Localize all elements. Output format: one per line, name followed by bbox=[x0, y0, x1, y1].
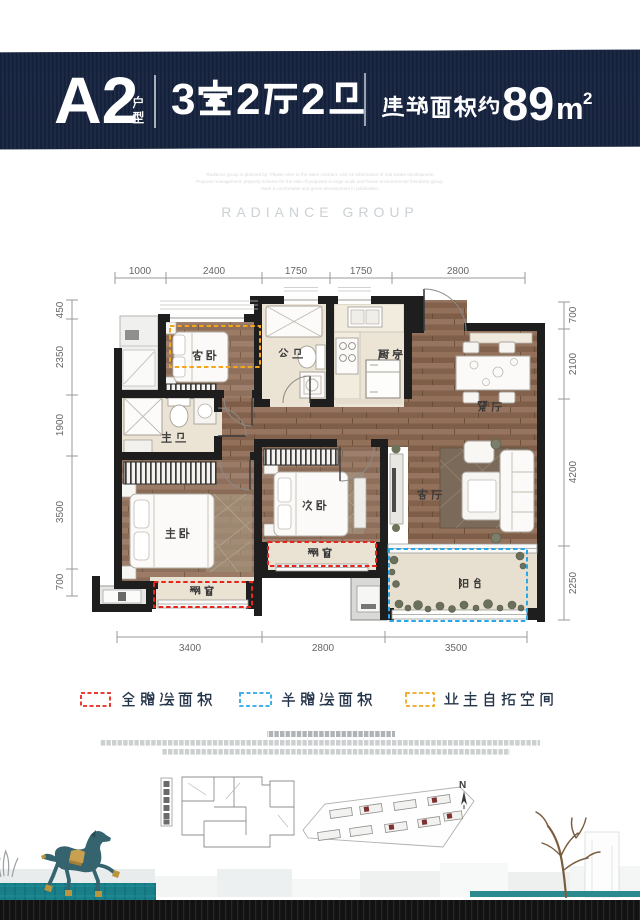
svg-text:700: 700 bbox=[55, 573, 66, 590]
svg-text:3400: 3400 bbox=[179, 643, 202, 654]
svg-text:N: N bbox=[459, 780, 466, 791]
svg-text:4200: 4200 bbox=[568, 460, 579, 483]
svg-text:Purpose management: property s: Purpose management: property scheme for … bbox=[196, 179, 444, 184]
svg-text:3500: 3500 bbox=[55, 500, 66, 523]
svg-text:1750: 1750 bbox=[350, 266, 373, 277]
svg-text:2: 2 bbox=[301, 75, 325, 124]
svg-text:RADIANCE GROUP: RADIANCE GROUP bbox=[221, 204, 419, 220]
svg-text:2800: 2800 bbox=[447, 266, 470, 277]
svg-text:Radiance group is planned by:: Radiance group is planned by: Please ref… bbox=[206, 172, 434, 177]
svg-text:2: 2 bbox=[583, 89, 592, 108]
svg-text:2: 2 bbox=[236, 75, 260, 124]
svg-text:2100: 2100 bbox=[568, 352, 579, 375]
svg-text:450: 450 bbox=[55, 301, 66, 318]
svg-text:A2: A2 bbox=[54, 63, 138, 137]
svg-text:3500: 3500 bbox=[445, 643, 468, 654]
svg-text:1000: 1000 bbox=[129, 266, 152, 277]
svg-text:m: m bbox=[556, 91, 584, 126]
svg-text:700: 700 bbox=[568, 306, 579, 323]
svg-text:89: 89 bbox=[502, 77, 554, 130]
svg-text:1750: 1750 bbox=[285, 266, 308, 277]
svg-text:1900: 1900 bbox=[55, 413, 66, 436]
svg-text:2400: 2400 bbox=[203, 266, 226, 277]
svg-text:2800: 2800 bbox=[312, 643, 335, 654]
svg-text:3: 3 bbox=[171, 75, 195, 124]
svg-text:2350: 2350 bbox=[55, 345, 66, 368]
svg-text:Have a comfortable and green d: Have a comfortable and green development… bbox=[261, 186, 380, 191]
svg-text:2250: 2250 bbox=[568, 571, 579, 594]
